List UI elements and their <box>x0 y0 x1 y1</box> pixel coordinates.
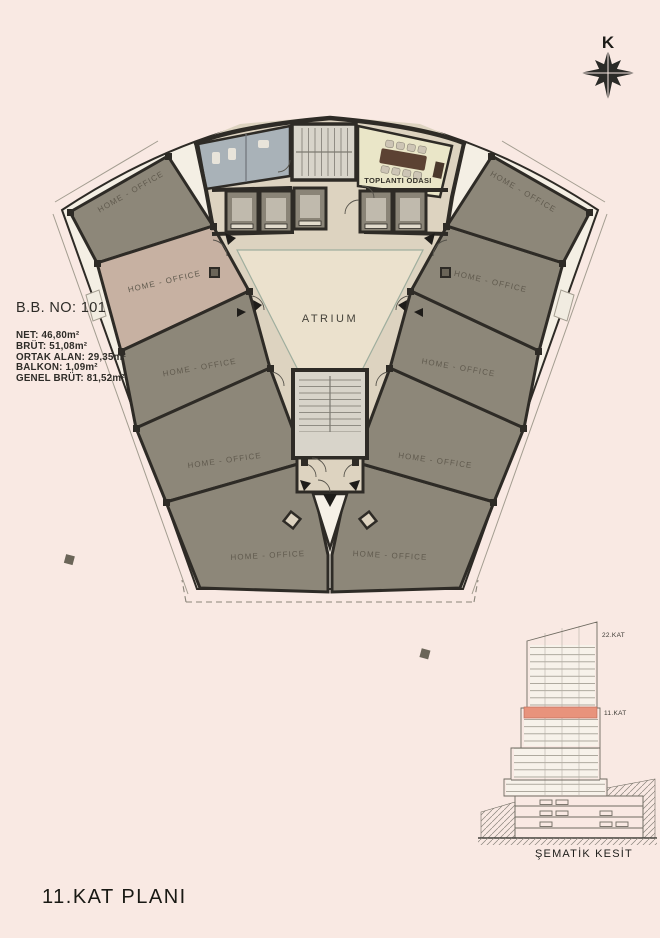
meeting-room-label: TOPLANTI ODASI <box>364 176 431 185</box>
unit-number: B.B. NO: 101 <box>16 300 126 316</box>
atrium-label: ATRIUM <box>302 313 358 325</box>
section-highlight-floor <box>524 707 597 718</box>
plan-canvas: K <box>0 0 660 933</box>
area-genel-brut: GENEL BRÜT: 81,52m² <box>16 374 126 385</box>
stair-top <box>292 124 356 180</box>
schematic-section: 22.KAT 11.KAT <box>478 622 657 845</box>
section-highlight-floor-label: 11.KAT <box>604 710 627 717</box>
north-arrow-icon: K <box>580 33 636 101</box>
floor-plan-drawing: ATRIUM <box>53 116 607 659</box>
wc-fixture <box>212 152 220 164</box>
section-caption: ŞEMATİK KESİT <box>535 848 633 860</box>
section-upper-floor-label: 22.KAT <box>602 632 625 639</box>
north-label: K <box>602 33 615 52</box>
area-brut: BRÜT: 51,08m² <box>16 342 126 353</box>
page-title: 11.KAT PLANI <box>42 886 187 909</box>
wc-fixture <box>258 140 269 148</box>
stair-bottom <box>293 370 367 492</box>
unit-info-block: B.B. NO: 101 NET: 46,80m² BRÜT: 51,08m² … <box>16 300 126 385</box>
floor-plan-sheet: { "title": "11.KAT PLANI", "north": { "l… <box>0 0 660 933</box>
wc-fixture <box>228 148 236 160</box>
section-podium <box>515 800 643 828</box>
elevators <box>226 188 426 232</box>
